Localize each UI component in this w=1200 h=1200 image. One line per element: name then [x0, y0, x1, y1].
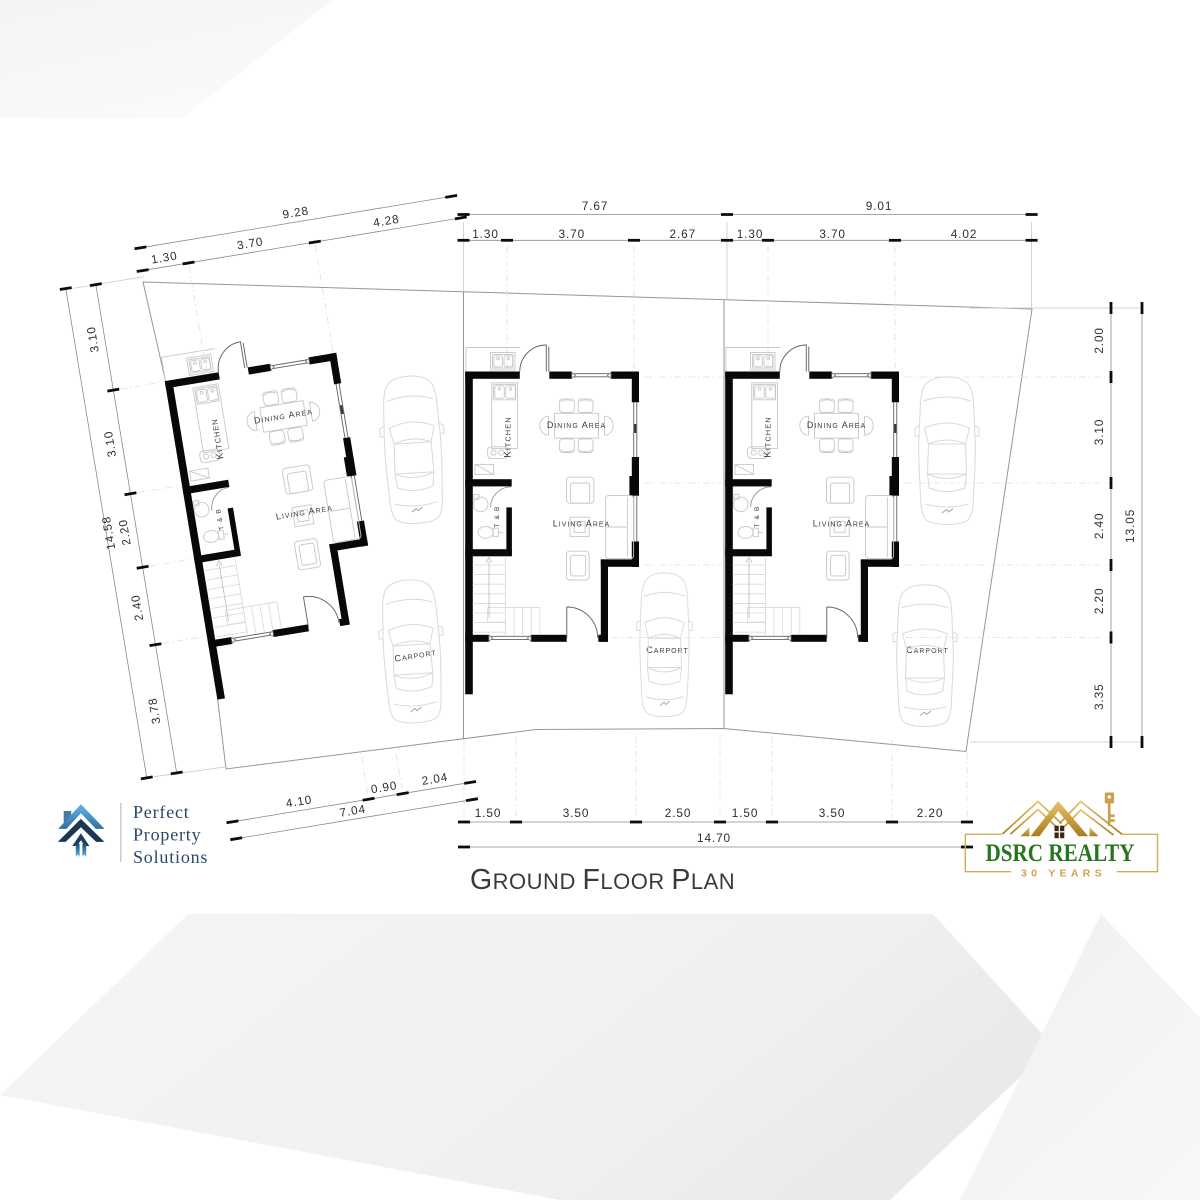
svg-text:2.67: 2.67 [670, 227, 697, 241]
svg-text:9.01: 9.01 [866, 199, 893, 213]
svg-text:Solutions: Solutions [133, 847, 208, 867]
svg-text:7.67: 7.67 [582, 199, 609, 213]
svg-text:3.10: 3.10 [1092, 419, 1106, 446]
svg-text:Perfect: Perfect [133, 802, 190, 822]
svg-text:2.00: 2.00 [1092, 327, 1106, 354]
svg-text:1.50: 1.50 [475, 806, 502, 820]
svg-text:4.10: 4.10 [285, 792, 313, 810]
svg-text:4.02: 4.02 [951, 227, 978, 241]
svg-text:2.40: 2.40 [128, 593, 146, 621]
svg-text:3.78: 3.78 [145, 697, 163, 725]
svg-text:9.28: 9.28 [281, 203, 309, 221]
svg-text:GROUND FLOOR PLAN: GROUND FLOOR PLAN [470, 864, 735, 896]
svg-text:3.70: 3.70 [819, 227, 846, 241]
svg-text:14.70: 14.70 [697, 831, 731, 845]
svg-text:3.10: 3.10 [101, 430, 119, 458]
svg-text:2.20: 2.20 [1092, 588, 1106, 615]
svg-text:2.20: 2.20 [116, 518, 134, 546]
svg-text:CARPORT: CARPORT [906, 645, 949, 655]
svg-text:1.30: 1.30 [472, 227, 499, 241]
svg-text:2.40: 2.40 [1092, 513, 1106, 540]
svg-text:DSRC REALTY: DSRC REALTY [986, 838, 1135, 867]
svg-text:2.04: 2.04 [421, 770, 449, 788]
svg-text:0.90: 0.90 [370, 778, 398, 796]
svg-text:1.30: 1.30 [737, 227, 764, 241]
svg-text:30 YEARS: 30 YEARS [1021, 868, 1106, 880]
svg-text:3.70: 3.70 [559, 227, 586, 241]
svg-text:CARPORT: CARPORT [646, 645, 689, 655]
svg-text:3.35: 3.35 [1092, 683, 1106, 710]
svg-text:3.10: 3.10 [84, 325, 102, 353]
svg-text:2.50: 2.50 [665, 806, 692, 820]
svg-text:7.04: 7.04 [338, 802, 366, 820]
svg-text:13.05: 13.05 [1123, 509, 1137, 543]
svg-text:4.28: 4.28 [372, 212, 400, 230]
svg-text:3.50: 3.50 [819, 806, 846, 820]
svg-text:1.50: 1.50 [732, 806, 759, 820]
svg-text:Property: Property [133, 825, 201, 845]
svg-text:2.20: 2.20 [917, 806, 944, 820]
svg-text:3.70: 3.70 [236, 234, 264, 252]
svg-text:3.50: 3.50 [563, 806, 590, 820]
svg-text:1.30: 1.30 [150, 248, 178, 266]
